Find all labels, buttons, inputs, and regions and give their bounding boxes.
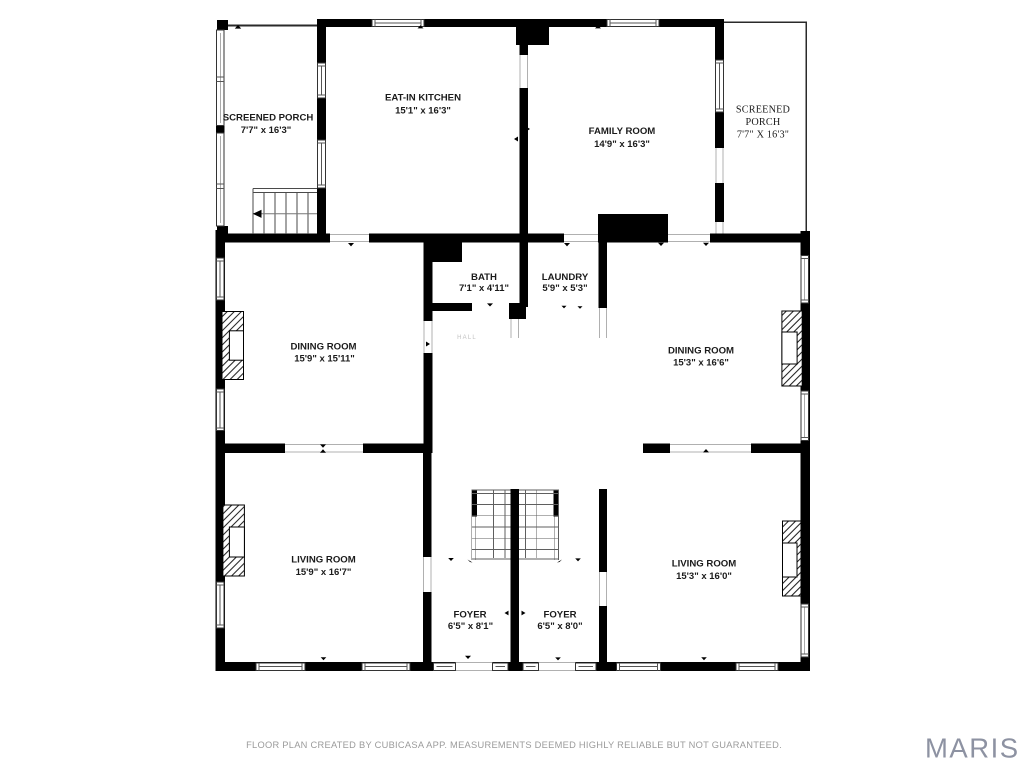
svg-text:15'3" x 16'0": 15'3" x 16'0": [676, 571, 732, 582]
svg-text:BATH: BATH: [471, 272, 497, 283]
svg-text:MARIS: MARIS: [925, 733, 1020, 764]
svg-text:FAMILY ROOM: FAMILY ROOM: [589, 126, 656, 137]
svg-text:FOYER: FOYER: [453, 610, 486, 621]
svg-text:6'5" x 8'0": 6'5" x 8'0": [537, 621, 582, 632]
svg-text:FOYER: FOYER: [543, 610, 576, 621]
svg-text:PORCH: PORCH: [746, 117, 781, 128]
svg-text:15'9" x 16'7": 15'9" x 16'7": [296, 567, 352, 578]
svg-text:LIVING ROOM: LIVING ROOM: [291, 555, 356, 566]
svg-text:LAUNDRY: LAUNDRY: [542, 272, 589, 283]
svg-text:15'9" x 15'11": 15'9" x 15'11": [294, 354, 355, 365]
svg-text:SCREENED PORCH: SCREENED PORCH: [223, 113, 314, 124]
svg-text:SCREENED: SCREENED: [736, 105, 790, 116]
svg-text:7'7" x 16'3": 7'7" x 16'3": [241, 125, 292, 136]
svg-text:6'5" x 8'1": 6'5" x 8'1": [448, 621, 493, 632]
svg-text:DINING ROOM: DINING ROOM: [668, 346, 734, 357]
svg-text:5'9" x 5'3": 5'9" x 5'3": [542, 283, 587, 294]
svg-text:LIVING ROOM: LIVING ROOM: [672, 559, 737, 570]
svg-text:15'3" x 16'6": 15'3" x 16'6": [673, 358, 729, 369]
svg-text:7'1" x 4'11": 7'1" x 4'11": [459, 283, 509, 294]
svg-text:EAT-IN KITCHEN: EAT-IN KITCHEN: [385, 93, 461, 104]
svg-text:15'1" x 16'3": 15'1" x 16'3": [395, 106, 451, 117]
svg-text:14'9" x 16'3": 14'9" x 16'3": [594, 139, 650, 150]
svg-text:7'7" X 16'3": 7'7" X 16'3": [737, 130, 789, 141]
svg-text:HALL: HALL: [457, 335, 477, 341]
svg-text:DINING ROOM: DINING ROOM: [290, 342, 356, 353]
svg-text:FLOOR PLAN CREATED BY CUBICASA: FLOOR PLAN CREATED BY CUBICASA APP. MEAS…: [246, 740, 782, 750]
